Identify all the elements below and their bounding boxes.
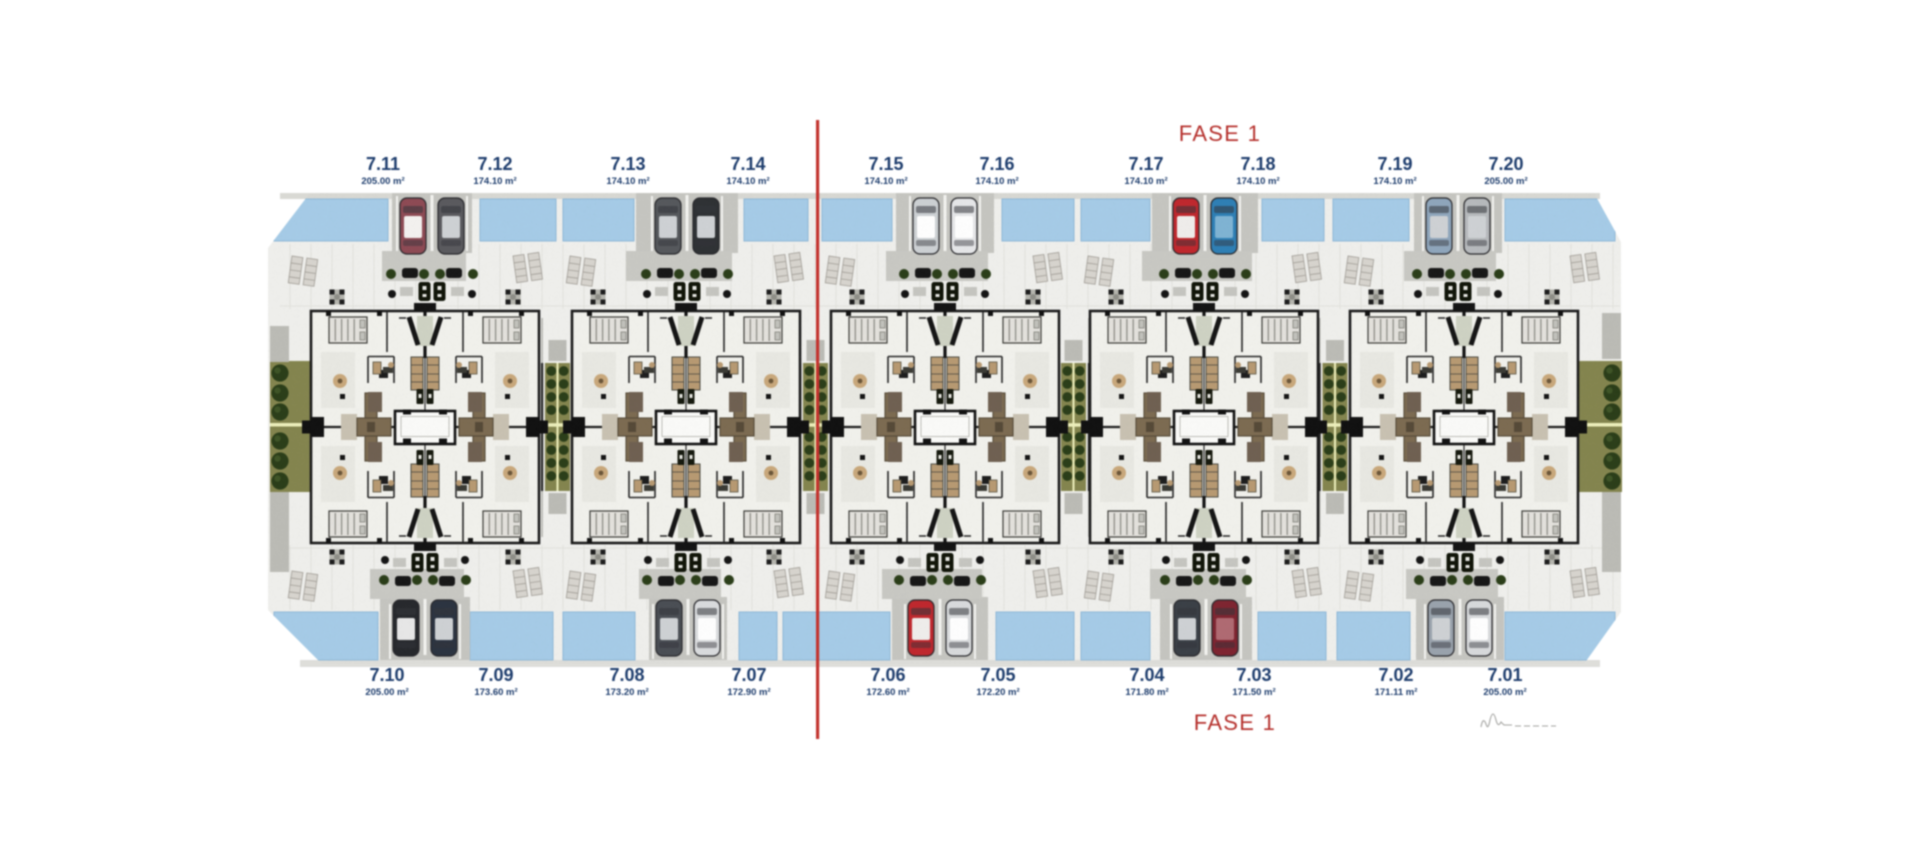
svg-text:7.06: 7.06 [870,665,905,685]
svg-text:174.10 m²: 174.10 m² [864,176,907,187]
svg-text:7.17: 7.17 [1128,154,1163,174]
svg-text:173.60 m²: 173.60 m² [474,687,517,698]
svg-text:172.20 m²: 172.20 m² [976,687,1019,698]
svg-text:174.10 m²: 174.10 m² [473,176,516,187]
svg-text:174.10 m²: 174.10 m² [1373,176,1416,187]
svg-text:7.09: 7.09 [478,665,513,685]
svg-text:205.00 m²: 205.00 m² [1484,176,1527,187]
svg-text:171.11 m²: 171.11 m² [1375,687,1418,698]
svg-text:7.18: 7.18 [1240,154,1275,174]
svg-text:174.10 m²: 174.10 m² [975,176,1018,187]
svg-text:171.50 m²: 171.50 m² [1232,687,1275,698]
svg-text:7.14: 7.14 [730,154,765,174]
svg-text:7.11: 7.11 [366,154,400,174]
svg-text:174.10 m²: 174.10 m² [1236,176,1279,187]
svg-text:7.13: 7.13 [610,154,645,174]
svg-text:205.00 m²: 205.00 m² [1483,687,1526,698]
svg-text:7.20: 7.20 [1488,154,1523,174]
svg-text:7.03: 7.03 [1236,665,1271,685]
svg-text:7.10: 7.10 [369,665,404,685]
svg-text:7.01: 7.01 [1487,665,1522,685]
svg-text:7.04: 7.04 [1129,665,1164,685]
svg-text:174.10 m²: 174.10 m² [726,176,769,187]
svg-text:172.60 m²: 172.60 m² [866,687,909,698]
svg-text:7.02: 7.02 [1378,665,1413,685]
svg-text:7.05: 7.05 [980,665,1015,685]
svg-text:205.00 m²: 205.00 m² [361,176,404,187]
svg-text:7.16: 7.16 [979,154,1014,174]
svg-text:173.20 m²: 173.20 m² [605,687,648,698]
svg-text:7.19: 7.19 [1377,154,1412,174]
svg-text:7.15: 7.15 [868,154,903,174]
svg-text:171.80 m²: 171.80 m² [1125,687,1168,698]
svg-text:174.10 m²: 174.10 m² [606,176,649,187]
svg-text:172.90 m²: 172.90 m² [727,687,770,698]
svg-text:174.10 m²: 174.10 m² [1124,176,1167,187]
svg-text:7.12: 7.12 [477,154,512,174]
svg-text:FASE 1: FASE 1 [1179,121,1261,146]
svg-text:7.07: 7.07 [731,665,766,685]
svg-text:205.00 m²: 205.00 m² [365,687,408,698]
svg-text:7.08: 7.08 [609,665,644,685]
svg-text:FASE 1: FASE 1 [1194,710,1276,735]
